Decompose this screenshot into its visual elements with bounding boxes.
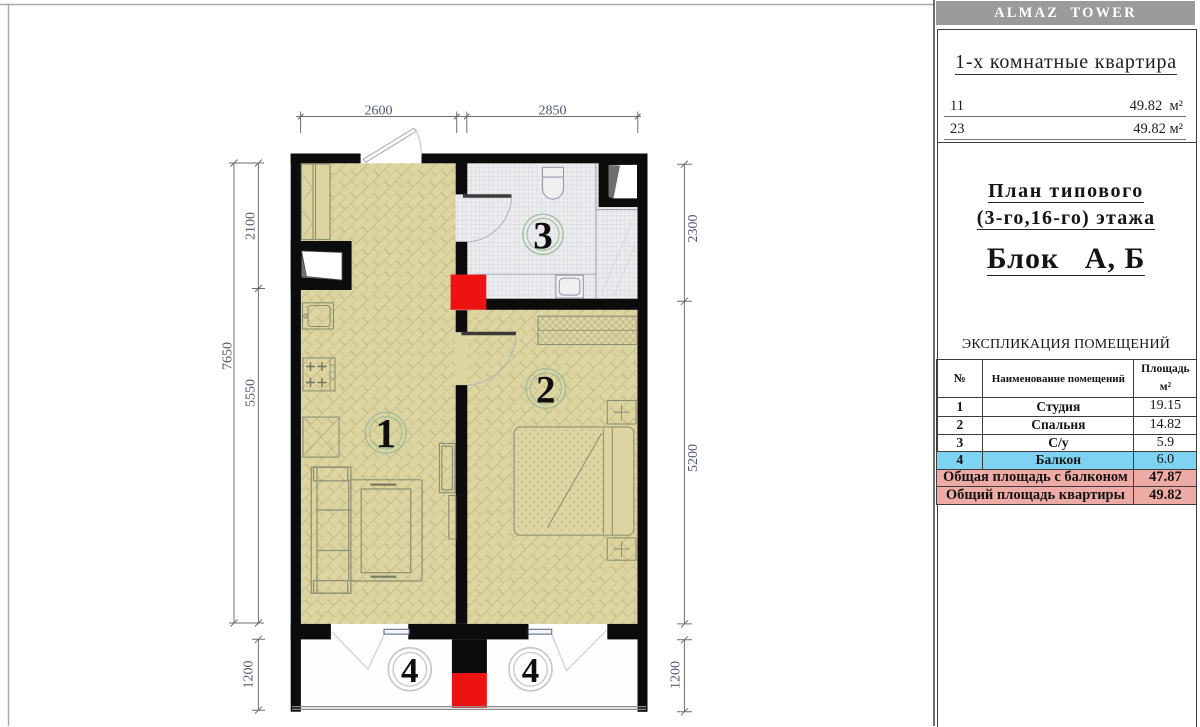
svg-text:1200: 1200 [669, 661, 684, 689]
svg-text:5550: 5550 [244, 379, 259, 407]
svg-text:4: 4 [522, 651, 540, 690]
svg-text:2600: 2600 [365, 104, 393, 119]
svg-text:3: 3 [533, 214, 553, 257]
svg-text:1: 1 [375, 410, 396, 456]
svg-text:2850: 2850 [539, 104, 567, 119]
svg-text:4: 4 [401, 651, 419, 690]
svg-text:1200: 1200 [242, 661, 257, 689]
svg-text:2100: 2100 [244, 212, 259, 240]
svg-text:5200: 5200 [686, 444, 701, 472]
svg-text:2: 2 [536, 368, 556, 411]
svg-text:2300: 2300 [686, 215, 701, 243]
svg-text:7650: 7650 [221, 342, 236, 370]
